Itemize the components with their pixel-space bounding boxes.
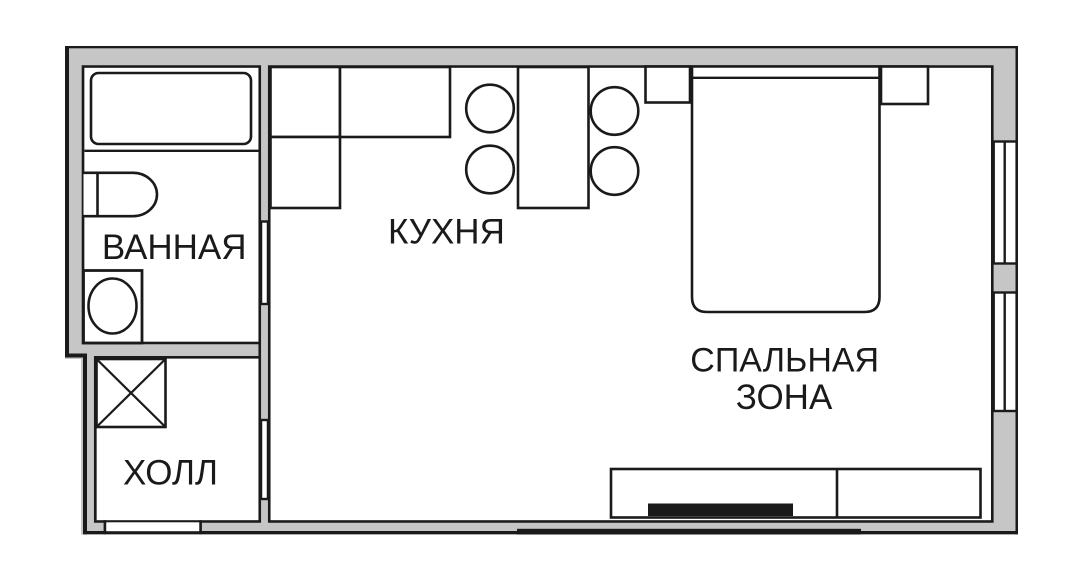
svg-text:КУХНЯ: КУХНЯ: [388, 213, 505, 252]
svg-text:ВАННАЯ: ВАННАЯ: [102, 228, 247, 267]
svg-text:СПАЛЬНАЯ: СПАЛЬНАЯ: [690, 342, 879, 380]
svg-text:ХОЛЛ: ХОЛЛ: [123, 454, 218, 493]
svg-text:ЗОНА: ЗОНА: [736, 378, 833, 417]
